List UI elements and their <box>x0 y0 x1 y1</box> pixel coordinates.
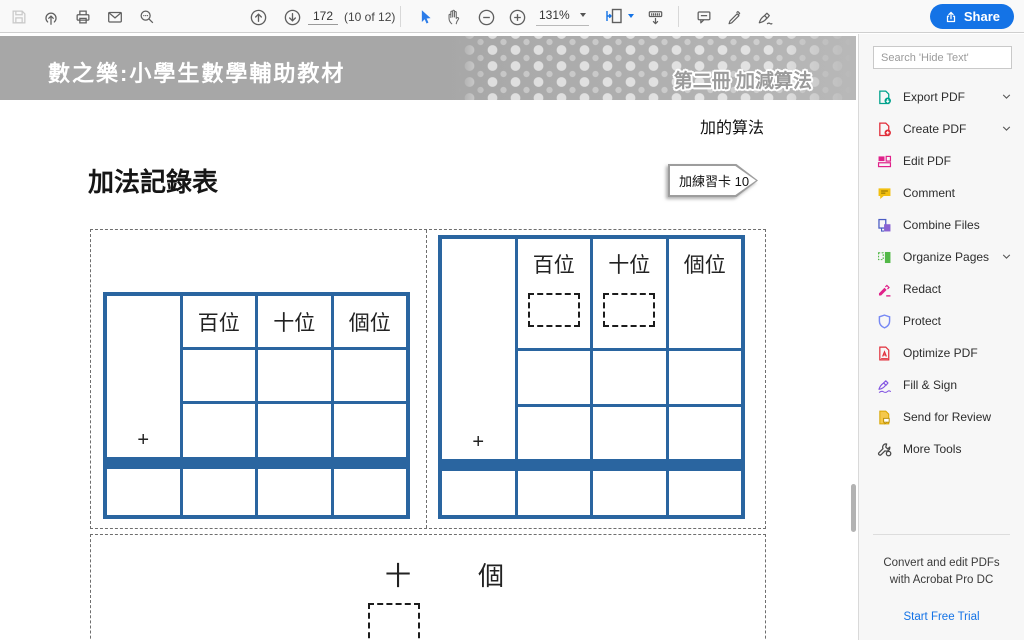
promo-text-line2: with Acrobat Pro DC <box>859 572 1024 589</box>
book-title: 數之樂:小學生數學輔助教材 <box>48 56 345 88</box>
bottom-dashed-frame <box>90 534 766 640</box>
tens-header: 十位 <box>593 239 666 348</box>
sidebar-item-label: Combine Files <box>903 218 980 232</box>
sum-line-band <box>442 462 741 468</box>
start-free-trial-link[interactable]: Start Free Trial <box>903 611 979 623</box>
tag-label: 加練習卡 10 <box>670 166 756 195</box>
sidebar-item-label: Export PDF <box>903 90 965 104</box>
addition-table-right: + 百位 十位 個位 <box>438 235 745 519</box>
zoom-in-button[interactable] <box>507 7 527 27</box>
comment-bubble-icon <box>695 8 713 26</box>
top-toolbar: (10 of 12) 131% <box>0 0 1024 33</box>
redact-icon <box>876 281 893 298</box>
arrow-up-circle-icon <box>249 8 268 27</box>
create-pdf-icon <box>876 121 893 138</box>
sidebar-item-fill-sign[interactable]: Fill & Sign <box>859 369 1024 401</box>
edit-pdf-icon <box>876 153 893 170</box>
upload-share-button[interactable] <box>41 7 61 27</box>
protect-shield-icon <box>876 313 893 330</box>
sidebar-item-label: Organize Pages <box>903 250 989 264</box>
table-cell <box>593 471 666 515</box>
share-button[interactable]: Share <box>930 4 1014 29</box>
page-title: 加法記錄表 <box>88 162 218 199</box>
comment-icon <box>876 185 893 202</box>
promo-text-line1: Convert and edit PDFs <box>859 555 1024 572</box>
page-fit-icon <box>604 6 624 26</box>
hundreds-header: 百位 <box>518 239 591 348</box>
highlighter-pen-icon <box>725 8 743 26</box>
search-icon <box>138 8 156 26</box>
page-count-label: (10 of 12) <box>344 10 395 24</box>
hand-tool-button[interactable] <box>444 7 464 27</box>
toolbar-separator <box>678 6 679 27</box>
carry-box <box>528 293 580 327</box>
sidebar-item-label: Redact <box>903 282 941 296</box>
hundreds-header: 百位 <box>183 296 256 347</box>
scroll-pages-icon <box>646 8 665 27</box>
search-button[interactable] <box>137 7 157 27</box>
section-label: 加的算法 <box>700 114 764 138</box>
tools-search-input[interactable] <box>873 46 1012 69</box>
page-down-button[interactable] <box>282 7 302 27</box>
sidebar-item-label: Create PDF <box>903 122 966 136</box>
tools-sidebar: Export PDF Create PDF Edit PDF Comment C… <box>858 34 1024 640</box>
volume-label: 第二冊 加減算法 <box>674 66 812 93</box>
optimize-pdf-icon <box>876 345 893 362</box>
sidebar-item-label: Edit PDF <box>903 154 951 168</box>
upload-cloud-icon <box>42 8 60 26</box>
sidebar-item-send-for-review[interactable]: Send for Review <box>859 401 1024 433</box>
table-cell <box>518 407 591 459</box>
carry-box <box>368 603 420 640</box>
table-cell <box>334 404 407 457</box>
ones-place-label: 個 <box>478 556 504 593</box>
arrow-down-circle-icon <box>283 8 302 27</box>
table-cell <box>518 351 591 404</box>
chevron-down-icon <box>1001 91 1012 102</box>
ones-header: 個位 <box>669 239 742 348</box>
table-cell <box>258 350 331 401</box>
select-tool-button[interactable] <box>415 7 435 27</box>
hand-icon <box>445 8 463 26</box>
print-icon <box>74 8 92 26</box>
vertical-scrollbar-thumb[interactable] <box>851 484 856 532</box>
sidebar-item-label: Send for Review <box>903 410 991 424</box>
sidebar-item-optimize-pdf[interactable]: Optimize PDF <box>859 337 1024 369</box>
dashed-divider <box>426 230 427 528</box>
send-review-icon <box>876 409 893 426</box>
zoom-out-button[interactable] <box>476 7 496 27</box>
zoom-level-dropdown[interactable]: 131% <box>536 7 589 26</box>
sidebar-item-label: More Tools <box>903 442 961 456</box>
page-fit-dropdown[interactable] <box>604 6 634 26</box>
export-pdf-icon <box>876 89 893 106</box>
sign-tool-button[interactable] <box>755 7 775 27</box>
table-cell <box>669 351 742 404</box>
share-icon <box>944 10 958 24</box>
tens-header-label: 十位 <box>608 249 650 279</box>
sidebar-item-label: Fill & Sign <box>903 378 957 392</box>
chevron-down-icon <box>1001 123 1012 134</box>
tens-place-label: 十 <box>385 556 411 593</box>
addition-table-left: + 百位 十位 個位 <box>103 292 410 519</box>
promo-divider <box>873 534 1010 535</box>
email-button[interactable] <box>105 7 125 27</box>
sidebar-item-organize-pages[interactable]: Organize Pages <box>859 241 1024 273</box>
carry-box <box>603 293 655 327</box>
email-icon <box>106 8 124 26</box>
organize-pages-icon <box>876 249 893 266</box>
plus-cell: + <box>107 296 180 457</box>
save-icon <box>10 8 28 26</box>
share-button-label: Share <box>964 9 1000 24</box>
sidebar-item-create-pdf[interactable]: Create PDF <box>859 113 1024 145</box>
table-cell <box>593 407 666 459</box>
plus-cell: + <box>442 239 515 459</box>
sidebar-item-label: Comment <box>903 186 955 200</box>
highlight-tool-button[interactable] <box>724 7 744 27</box>
sidebar-item-comment[interactable]: Comment <box>859 177 1024 209</box>
chevron-down-icon <box>580 13 586 17</box>
table-cell <box>334 350 407 401</box>
scrolling-mode-button[interactable] <box>645 7 665 27</box>
zoom-level-value: 131% <box>539 8 570 22</box>
pdf-header-banner: 數之樂:小學生數學輔助教材 第二冊 加減算法 <box>0 36 856 100</box>
print-button[interactable] <box>73 7 93 27</box>
table-cell <box>442 471 515 515</box>
sum-line-band <box>107 460 406 466</box>
acrobat-pro-promo: Convert and edit PDFs with Acrobat Pro D… <box>859 534 1024 625</box>
more-tools-icon <box>876 441 893 458</box>
sidebar-item-label: Protect <box>903 314 941 328</box>
document-viewport: 數之樂:小學生數學輔助教材 第二冊 加減算法 加的算法 加法記錄表 加練習卡 1… <box>0 34 858 640</box>
pointer-icon <box>416 8 434 26</box>
ones-header-label: 個位 <box>684 249 726 279</box>
table-cell <box>183 350 256 401</box>
tens-header: 十位 <box>258 296 331 347</box>
hundreds-header-label: 百位 <box>533 249 575 279</box>
minus-circle-icon <box>477 8 496 27</box>
table-cell <box>258 404 331 457</box>
sidebar-item-more-tools[interactable]: More Tools <box>859 433 1024 465</box>
chevron-down-icon <box>1001 251 1012 262</box>
table-cell <box>183 404 256 457</box>
table-cell <box>334 469 407 515</box>
plus-circle-icon <box>508 8 527 27</box>
signature-pen-icon <box>756 8 775 27</box>
comment-tool-button[interactable] <box>694 7 714 27</box>
sidebar-item-export-pdf[interactable]: Export PDF <box>859 81 1024 113</box>
table-cell <box>258 469 331 515</box>
sidebar-item-redact[interactable]: Redact <box>859 273 1024 305</box>
table-cell <box>183 469 256 515</box>
page-up-button[interactable] <box>248 7 268 27</box>
table-cell <box>669 471 742 515</box>
save-button[interactable] <box>9 7 29 27</box>
sidebar-item-label: Optimize PDF <box>903 346 978 360</box>
fill-sign-pen-icon <box>876 377 893 394</box>
combine-files-icon <box>876 217 893 234</box>
chevron-down-icon <box>628 14 634 18</box>
tag-border: 加練習卡 10 <box>668 164 758 197</box>
page-number-input[interactable] <box>308 7 338 25</box>
table-cell <box>669 407 742 459</box>
table-cell <box>593 351 666 404</box>
toolbar-separator <box>400 6 401 27</box>
sidebar-item-protect[interactable]: Protect <box>859 305 1024 337</box>
table-cell <box>107 469 180 515</box>
practice-card-tag: 加練習卡 10 <box>668 164 758 197</box>
ones-header: 個位 <box>334 296 407 347</box>
sidebar-item-edit-pdf[interactable]: Edit PDF <box>859 145 1024 177</box>
table-cell <box>518 471 591 515</box>
sidebar-item-combine-files[interactable]: Combine Files <box>859 209 1024 241</box>
